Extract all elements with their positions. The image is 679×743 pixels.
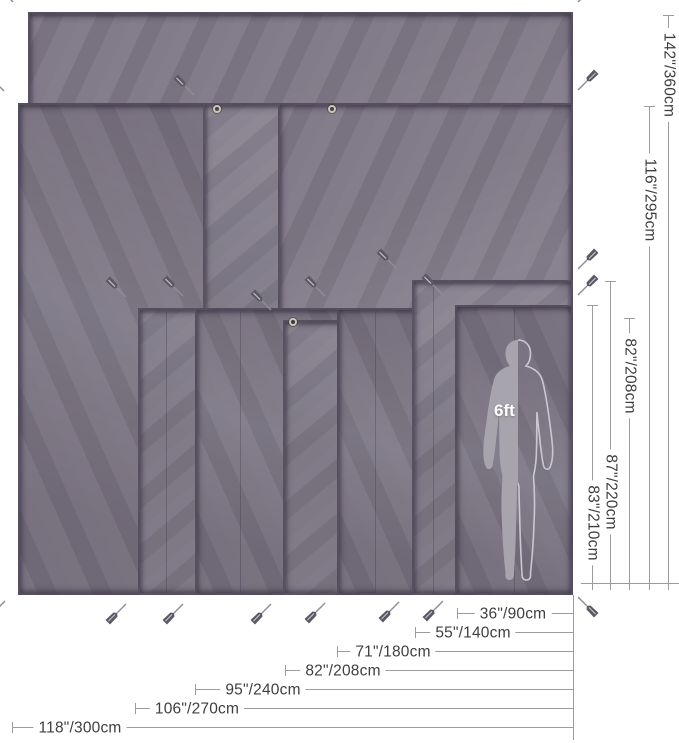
dimension-label: 82"/208cm	[300, 661, 385, 680]
stake-icon	[576, 68, 600, 92]
guide-line-horizontal	[581, 583, 679, 584]
stake-icon	[161, 602, 185, 626]
dimension-cap	[195, 684, 196, 695]
stake-icon	[375, 247, 399, 271]
stake-icon	[377, 600, 401, 624]
guide-line-vertical	[573, 595, 574, 740]
stake-icon	[421, 599, 445, 623]
dimension-cap	[587, 305, 598, 306]
dimension-cap	[415, 627, 416, 638]
person-silhouette	[477, 339, 559, 583]
person-height-label: 6ft	[494, 401, 515, 421]
dimension-cap	[135, 703, 136, 714]
dimension-cap	[12, 722, 13, 733]
tarp-seam	[433, 284, 434, 593]
dimension-label: 36"/90cm	[475, 604, 552, 623]
tarp-seam	[240, 312, 241, 593]
stake-icon	[104, 602, 128, 626]
dimension-cap	[663, 15, 674, 16]
stake-icon	[0, 69, 6, 93]
dimension-cap	[624, 318, 635, 319]
grommet-icon	[213, 105, 221, 113]
dimension-label: 95"/240cm	[220, 680, 305, 699]
stake-icon	[576, 595, 600, 619]
stake-icon	[576, 273, 600, 297]
dimension-label: 106"/270cm	[150, 699, 244, 718]
stake-icon	[104, 275, 128, 299]
grommet-icon	[289, 318, 297, 326]
stake-icon	[576, 0, 600, 4]
tarp-seam	[166, 312, 167, 593]
dimension-cap	[457, 608, 458, 619]
dimension-cap	[285, 665, 286, 676]
dimension-label: 71"/180cm	[350, 642, 435, 661]
dimension-label: 87"/220cm	[601, 449, 620, 534]
tarp-seam	[375, 312, 376, 593]
dimension-cap	[605, 281, 616, 282]
stake-icon	[161, 274, 185, 298]
stake-icon	[249, 602, 273, 626]
stake-icon	[172, 73, 196, 97]
dimension-label: 83"/210cm	[583, 480, 602, 565]
dimension-label: 82"/208cm	[620, 333, 639, 418]
stake-icon	[303, 274, 327, 298]
tarp-size-diagram: 6ft 142"/360cm116"/295cm82"/208cm87"/220…	[0, 0, 679, 743]
stake-icon	[249, 288, 273, 312]
stake-icon	[303, 601, 327, 625]
dimension-label: 116"/295cm	[640, 153, 659, 246]
dimension-line-vertical	[610, 281, 611, 590]
grommet-icon	[328, 105, 336, 113]
stake-icon	[576, 247, 600, 271]
dimension-label: 55"/140cm	[430, 623, 515, 642]
dimension-cap	[337, 646, 338, 657]
dimension-cap	[644, 106, 655, 107]
stake-icon	[0, 599, 7, 623]
stake-icon	[420, 272, 444, 296]
stake-icon	[0, 0, 15, 4]
dimension-label: 142"/360cm	[659, 28, 678, 122]
dimension-label: 118"/300cm	[33, 718, 126, 737]
